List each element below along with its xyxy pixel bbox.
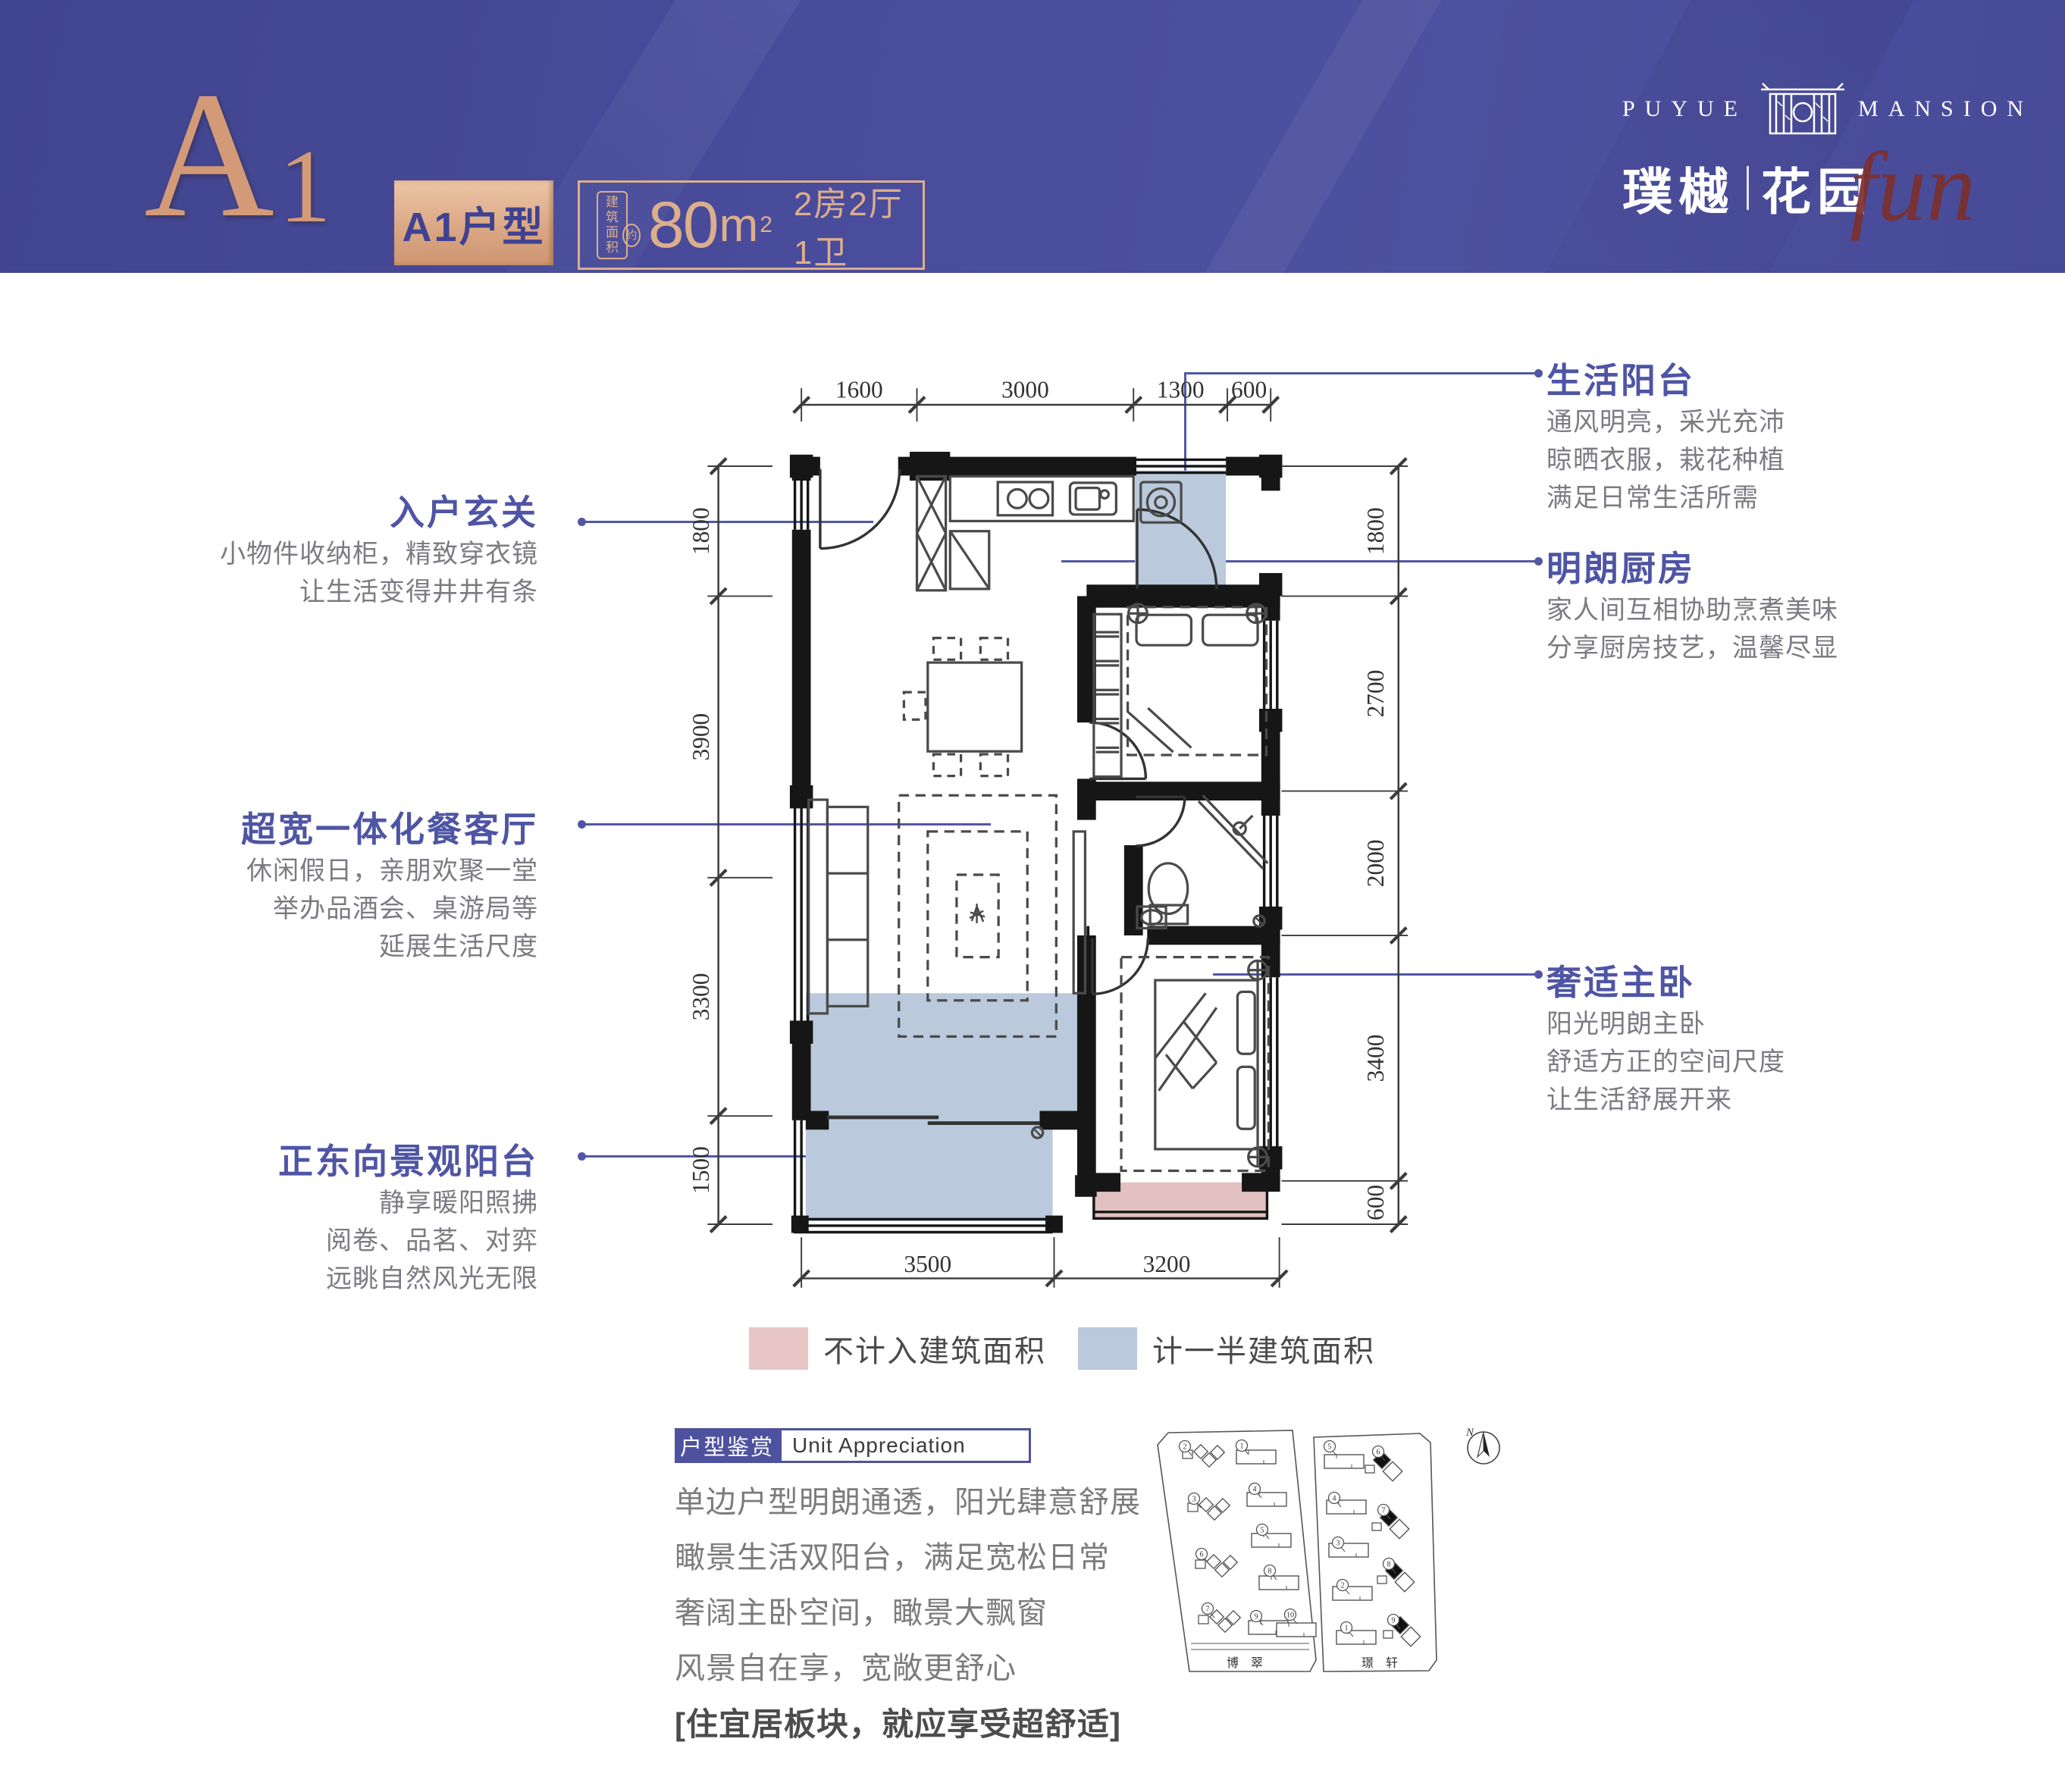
unit-type-badge: A1户型 <box>394 180 553 265</box>
callout-line: 满足日常生活所需 <box>1546 479 1785 517</box>
legend-label: 计一半建筑面积 <box>1152 1327 1375 1371</box>
shaded-areas <box>806 471 1267 1221</box>
brand-cn-left: 璞樾 <box>1622 152 1734 224</box>
area-prefix-box: 建筑面积 <box>597 191 628 259</box>
site-plan: 21345687910 564738291 博 翠 璟 轩 N <box>1141 1408 1524 1731</box>
svg-text:9: 9 <box>1392 1617 1396 1625</box>
svg-text:2000: 2000 <box>1362 839 1389 887</box>
floor-plan: 1600 3000 1300 600 1800 3900 3300 1500 1… <box>682 341 1440 1319</box>
appreciation-line: 奢阔主卧空间，瞰景大飘窗 <box>675 1586 1160 1641</box>
svg-text:3900: 3900 <box>688 713 714 761</box>
appreciation-line: 瞰景生活双阳台，满足宽松日常 <box>675 1530 1160 1586</box>
svg-text:7: 7 <box>1206 1606 1210 1614</box>
appreciation-emphasis: [住宜居板块，就应享受超舒适] <box>675 1696 1160 1752</box>
callout-line: 举办品酒会、桌游局等 <box>241 890 538 928</box>
callout-living: 超宽一体化餐客厅 休闲假日，亲朋欢聚一堂 举办品酒会、桌游局等 延展生活尺度 <box>241 802 538 966</box>
parcel-2-label: 璟 轩 <box>1362 1656 1402 1670</box>
svg-text:9: 9 <box>1255 1613 1258 1621</box>
area-prefix: 建筑面积 约 <box>597 191 641 259</box>
svg-text:3000: 3000 <box>1001 377 1049 403</box>
callout-line: 让生活变得井井有条 <box>220 573 538 611</box>
callout-title: 明朗厨房 <box>1546 541 1838 591</box>
appreciation-header: 户型鉴赏 Unit Appreciation <box>675 1428 1031 1463</box>
svg-text:8: 8 <box>1268 1568 1272 1576</box>
svg-text:4: 4 <box>1333 1495 1336 1503</box>
callout-title: 奢适主卧 <box>1546 955 1785 1005</box>
callout-line: 休闲假日，亲朋欢聚一堂 <box>241 852 538 890</box>
appreciation-title-en: Unit Appreciation <box>779 1428 1031 1463</box>
brand-en: PUYUE MANSION <box>1622 79 2047 139</box>
unit-code: A1 <box>144 65 331 246</box>
unit-code-number: 1 <box>279 128 331 244</box>
legend-label: 不计入建筑面积 <box>823 1327 1046 1371</box>
unit-type-label: A1户型 <box>402 193 545 253</box>
svg-text:2700: 2700 <box>1362 670 1389 718</box>
callout-line: 阳光明朗主卧 <box>1546 1005 1785 1043</box>
unit-spec-box: 建筑面积 约 80m2 2房2厅1卫 <box>578 180 925 270</box>
svg-text:3300: 3300 <box>688 973 714 1021</box>
unit-code-letter: A <box>144 55 274 255</box>
callout-line: 家人间互相协助烹煮美味 <box>1546 591 1838 629</box>
callout-master-bedroom: 奢适主卧 阳光明朗主卧 舒适方正的空间尺度 让生活舒展开来 <box>1546 955 1785 1119</box>
svg-text:6: 6 <box>1377 1449 1380 1457</box>
svg-text:7: 7 <box>1382 1507 1386 1515</box>
legend-swatch-blue <box>1078 1327 1137 1370</box>
area-value: 80 <box>648 188 718 263</box>
callout-entry: 入户玄关 小物件收纳柜，精致穿衣镜 让生活变得井井有条 <box>220 485 538 611</box>
svg-text:1: 1 <box>1240 1443 1244 1451</box>
callout-service-balcony: 生活阳台 通风明亮，采光充沛 晾晒衣服，栽花种植 满足日常生活所需 <box>1546 353 1785 517</box>
svg-text:3: 3 <box>1336 1540 1340 1548</box>
compass-label: N <box>1465 1427 1474 1439</box>
callout-view-balcony: 正东向景观阳台 静享暖阳照拂 阅卷、品茗、对弈 远眺自然风光无限 <box>278 1134 538 1298</box>
svg-text:600: 600 <box>1231 377 1267 403</box>
callout-line: 舒适方正的空间尺度 <box>1546 1043 1785 1081</box>
callout-line: 小物件收纳柜，精致穿衣镜 <box>220 535 538 573</box>
legend-swatch-pink <box>749 1327 808 1370</box>
brand-divider <box>1747 166 1749 210</box>
svg-text:6: 6 <box>1200 1551 1204 1559</box>
parcel-1-buildings: 21345687910 <box>1180 1440 1317 1637</box>
callout-line: 延展生活尺度 <box>241 928 538 966</box>
compass-icon: N <box>1465 1427 1499 1464</box>
appreciation-line: 单边户型明朗通透，阳光肆意舒展 <box>675 1475 1160 1530</box>
callout-line: 晾晒衣服，栽花种植 <box>1546 441 1785 479</box>
svg-text:2: 2 <box>1341 1582 1345 1590</box>
callout-title: 入户玄关 <box>220 485 538 535</box>
brand-en-right: MANSION <box>1858 96 2033 122</box>
legend-item-half: 计一半建筑面积 <box>1078 1327 1375 1371</box>
svg-text:3: 3 <box>1192 1496 1196 1504</box>
svg-text:1800: 1800 <box>688 507 714 555</box>
svg-text:2: 2 <box>1183 1443 1187 1452</box>
callout-title: 生活阳台 <box>1546 353 1785 403</box>
callout-line: 让生活舒展开来 <box>1546 1081 1785 1119</box>
callout-line: 通风明亮，采光充沛 <box>1546 403 1785 441</box>
header-band: A1 A1户型 建筑面积 约 80m2 2房2厅1卫 PUYUE <box>0 0 2065 273</box>
appreciation-line: 风景自在享，宽敞更舒心 <box>675 1641 1160 1696</box>
gate-emblem-icon <box>1758 79 1847 139</box>
decorative-streak <box>1092 0 1493 273</box>
callout-title: 正东向景观阳台 <box>278 1134 538 1184</box>
parcel-2-buildings: 564738291 <box>1324 1441 1421 1646</box>
area-unit: m <box>719 199 759 252</box>
svg-text:1500: 1500 <box>688 1146 714 1194</box>
parcel-1-label: 博 翠 <box>1227 1656 1268 1670</box>
svg-text:1: 1 <box>1345 1624 1349 1633</box>
area-approx-circle: 约 <box>622 224 641 247</box>
svg-text:10: 10 <box>1286 1612 1294 1620</box>
callout-line: 阅卷、品茗、对弈 <box>278 1222 538 1260</box>
flyer-page: A1 A1户型 建筑面积 约 80m2 2房2厅1卫 PUYUE <box>0 0 2065 1792</box>
area-sup: 2 <box>760 212 772 238</box>
svg-text:3400: 3400 <box>1362 1035 1389 1082</box>
svg-text:600: 600 <box>1362 1185 1389 1220</box>
svg-text:5: 5 <box>1328 1443 1332 1452</box>
brand-en-left: PUYUE <box>1622 96 1747 122</box>
appreciation-text: 单边户型明朗通透，阳光肆意舒展 瞰景生活双阳台，满足宽松日常 奢阔主卧空间，瞰景… <box>675 1475 1160 1752</box>
legend-item-excluded: 不计入建筑面积 <box>749 1327 1046 1371</box>
svg-text:3500: 3500 <box>904 1251 951 1277</box>
room-count: 2房2厅1卫 <box>794 177 923 273</box>
svg-text:5: 5 <box>1261 1527 1264 1535</box>
svg-text:1300: 1300 <box>1157 377 1205 403</box>
svg-text:8: 8 <box>1387 1561 1391 1569</box>
brand-script: fun <box>1850 130 1976 244</box>
svg-text:3200: 3200 <box>1143 1251 1191 1277</box>
callout-kitchen: 明朗厨房 家人间互相协助烹煮美味 分享厨房技艺，温馨尽显 <box>1546 541 1838 667</box>
callout-line: 分享厨房技艺，温馨尽显 <box>1546 629 1838 667</box>
callout-line: 静享暖阳照拂 <box>278 1184 538 1222</box>
appreciation-title-cn: 户型鉴赏 <box>675 1428 779 1463</box>
callout-line: 远眺自然风光无限 <box>278 1260 538 1298</box>
callout-title: 超宽一体化餐客厅 <box>241 802 538 852</box>
svg-text:1800: 1800 <box>1362 507 1389 555</box>
brand-cn: 璞樾 花园 fun <box>1622 152 2047 224</box>
brand-logo: PUYUE MANSION 璞樾 花园 fun <box>1622 79 2047 224</box>
svg-text:1600: 1600 <box>835 377 883 403</box>
svg-text:4: 4 <box>1253 1486 1257 1494</box>
